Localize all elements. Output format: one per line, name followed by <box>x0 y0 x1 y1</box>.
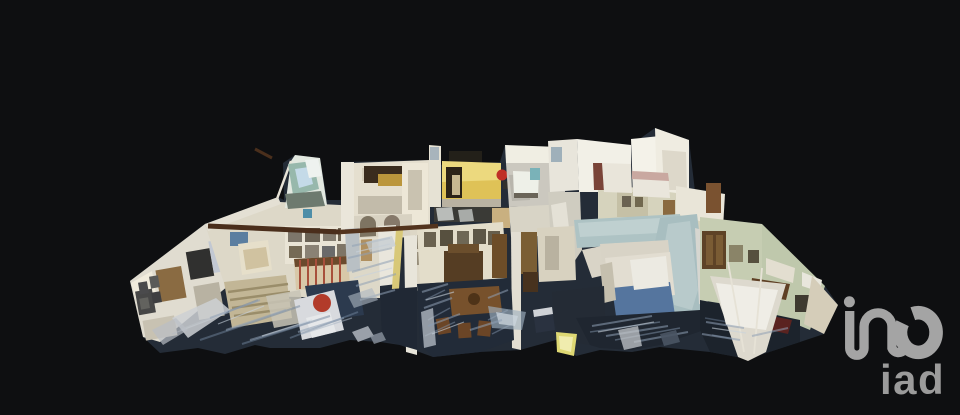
svg-text:iad: iad <box>880 356 945 403</box>
